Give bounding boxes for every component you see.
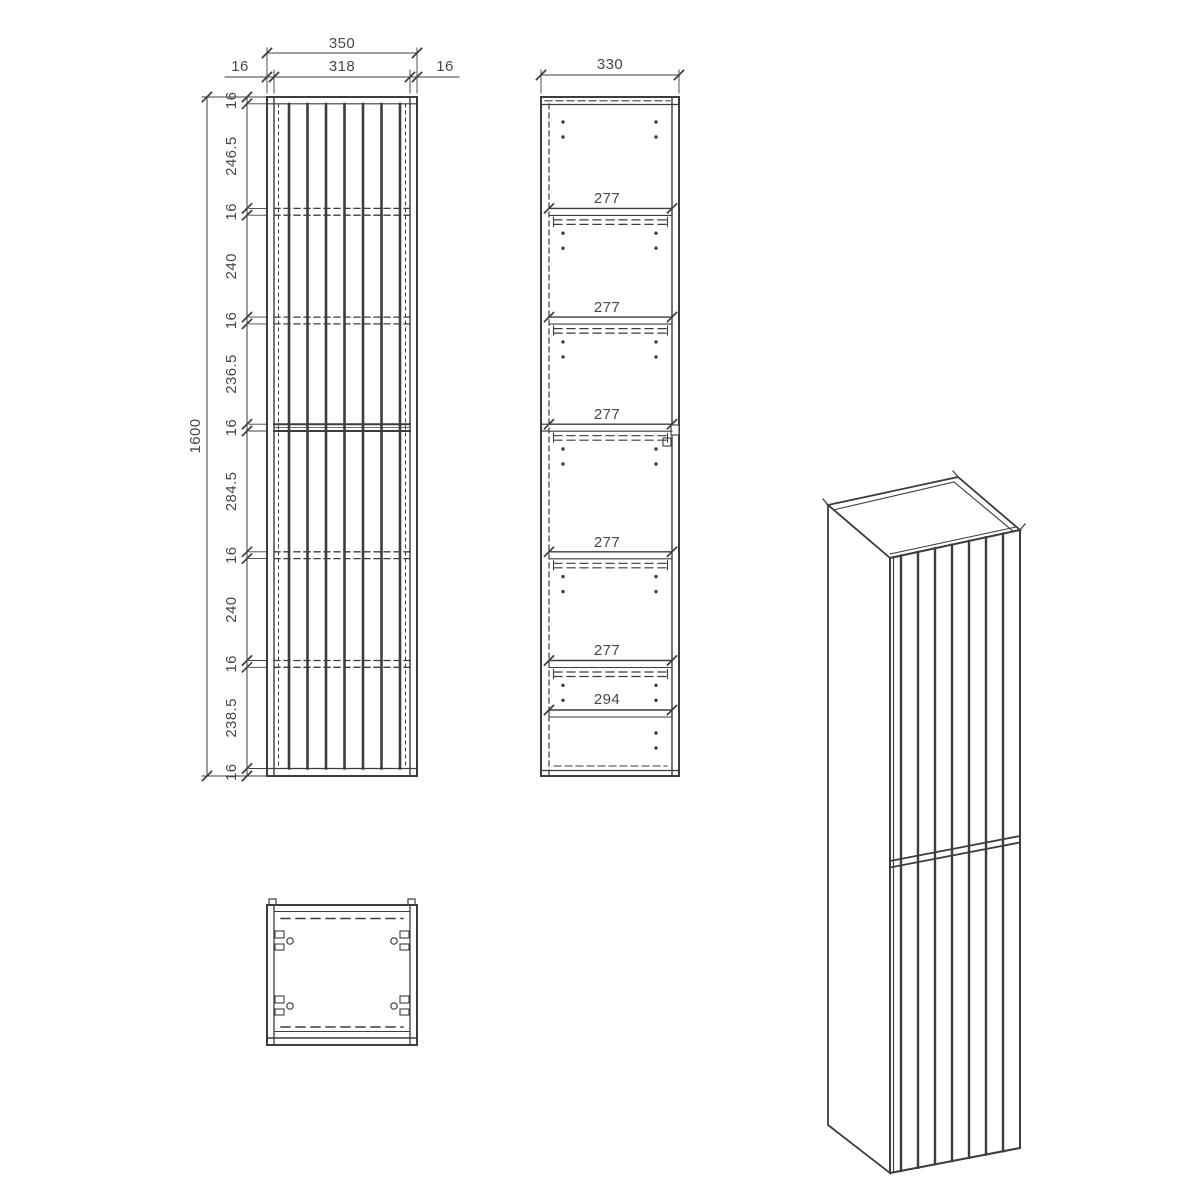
- shelf-pin-hole: [561, 462, 564, 465]
- shelf-pin-hole: [654, 355, 657, 358]
- shelf-pin-hole: [654, 575, 657, 578]
- chain-label-10: 16: [223, 655, 240, 673]
- shelf-pin-hole: [561, 575, 564, 578]
- shelf-pin-hole: [561, 135, 564, 138]
- iso-front-face: [890, 530, 1020, 1173]
- shelf-pin-hole: [561, 684, 564, 687]
- shelf-pin-hole: [561, 699, 564, 702]
- shelf-pin-hole: [654, 684, 657, 687]
- shelf-pin-hole: [654, 340, 657, 343]
- chain-label-3: 240: [223, 253, 240, 279]
- dim-label-side-left: 16: [231, 58, 249, 75]
- shelf-pin-hole: [561, 355, 564, 358]
- front-view: [267, 97, 417, 776]
- shelf-pin-hole: [561, 340, 564, 343]
- shelf-pin-hole: [561, 590, 564, 593]
- shelf-pin-hole: [654, 120, 657, 123]
- shelf-depth-label-1: 277: [594, 299, 620, 316]
- shelf-pin-hole: [654, 135, 657, 138]
- plan-view: [267, 899, 417, 1045]
- shelf-pin-hole: [654, 462, 657, 465]
- chain-label-0: 16: [223, 92, 240, 110]
- shelf-pin-hole: [654, 247, 657, 250]
- side-dim-ticks: [537, 70, 684, 93]
- shelf-depth-label-0: 277: [594, 190, 620, 207]
- shelf-pin-hole: [654, 447, 657, 450]
- dim-label-inner-width: 318: [329, 58, 355, 75]
- shelf-pin-hole: [654, 746, 657, 749]
- chain-label-6: 16: [223, 419, 240, 437]
- shelf-pin-hole: [654, 731, 657, 734]
- dim-label-bottom-depth: 294: [594, 691, 620, 708]
- technical-drawing-canvas: 350 16 318 16 1600 16 246.5 16 240 16 23…: [0, 0, 1200, 1200]
- dim-label-side-right: 16: [436, 58, 454, 75]
- shelf-pin-hole: [561, 447, 564, 450]
- side-hanger-bracket-1: [671, 425, 679, 435]
- shelf-pin-hole: [561, 120, 564, 123]
- shelf-pin-hole: [561, 232, 564, 235]
- chain-label-9: 240: [223, 596, 240, 622]
- shelf-depth-label-4: 277: [594, 642, 620, 659]
- plan-outline: [267, 905, 417, 1045]
- dim-label-total-depth: 330: [597, 56, 623, 73]
- iso-left-side-face: [828, 505, 890, 1173]
- shelf-depth-label-2: 277: [594, 406, 620, 423]
- shelf-depth-label-3: 277: [594, 534, 620, 551]
- chain-label-1: 246.5: [223, 136, 240, 176]
- chain-label-8: 16: [223, 546, 240, 564]
- shelf-pin-hole: [561, 247, 564, 250]
- chain-label-12: 16: [223, 764, 240, 782]
- shelf-pin-hole: [654, 232, 657, 235]
- dim-label-total-width: 350: [329, 35, 355, 52]
- isometric-view: [823, 471, 1025, 1173]
- chain-label-7: 284.5: [223, 472, 240, 512]
- dim-label-total-height: 1600: [187, 419, 204, 454]
- chain-label-5: 236.5: [223, 354, 240, 394]
- chain-label-2: 16: [223, 203, 240, 221]
- drawing-page: 350 16 318 16 1600 16 246.5 16 240 16 23…: [0, 0, 1200, 1200]
- shelf-pin-hole: [654, 699, 657, 702]
- chain-label-11: 238.5: [223, 698, 240, 738]
- shelf-pin-hole: [654, 590, 657, 593]
- iso-corner-tick-back: [953, 471, 958, 477]
- chain-label-4: 16: [223, 312, 240, 330]
